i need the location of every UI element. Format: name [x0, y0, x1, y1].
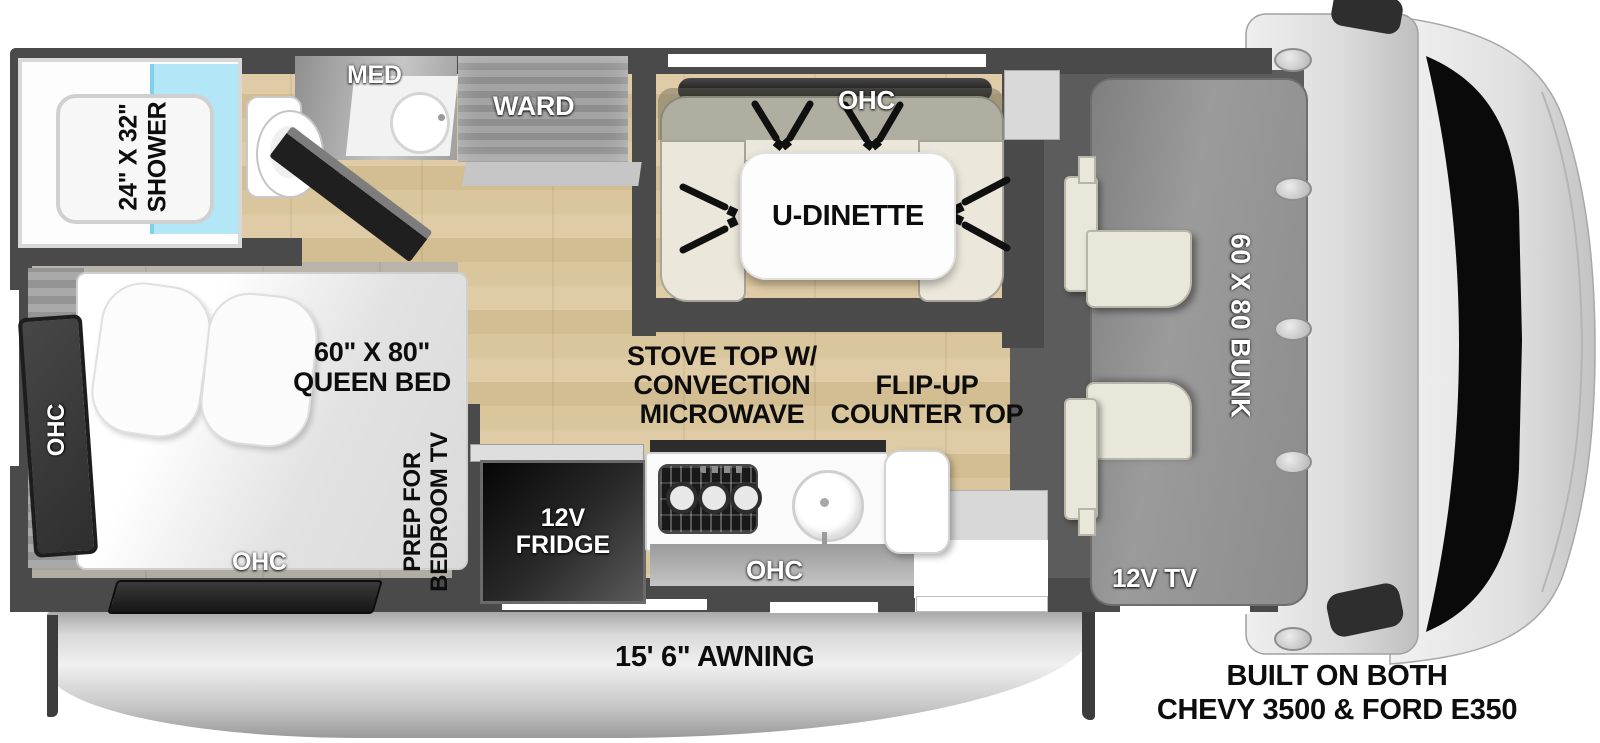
queen-bed-label-line1: 60" X 80"	[293, 337, 451, 367]
flip-up-label-line2: COUNTER TOP	[831, 400, 1024, 429]
stove-knobs-icon	[700, 466, 744, 473]
awning-end-cap-left	[47, 615, 58, 717]
cab-seat-bottom-cushion	[1086, 382, 1192, 460]
fridge-label: 12V FRIDGE	[516, 505, 610, 560]
entry-step-platform	[938, 490, 1048, 546]
clearance-light-icon-1	[1274, 48, 1312, 72]
u-dinette-table: U-DINETTE	[740, 152, 956, 280]
bunk-overlay	[1090, 78, 1308, 606]
awning-end-cap-right	[1082, 612, 1095, 720]
stove-label-line2: CONVECTION	[627, 371, 817, 400]
queen-bed-label: 60" X 80" QUEEN BED	[293, 337, 451, 397]
entry-threshold	[916, 596, 1048, 612]
fridge: 12V FRIDGE	[480, 460, 646, 604]
shower-label: 24" X 32" SHOWER	[114, 102, 172, 213]
bath-sink-icon	[390, 92, 450, 154]
flip-up-counter	[884, 450, 950, 554]
fridge-label-line2: FRIDGE	[516, 532, 610, 560]
tv-prep-label: PREP FOR BEDROOM TV	[399, 432, 453, 592]
bedroom-ohc-foot-label: OHC	[232, 549, 287, 576]
kitchen-ohc-label: OHC	[746, 556, 803, 584]
burner-icon-3	[730, 482, 762, 514]
sink-drain-icon	[820, 498, 829, 507]
kitchen-sink-icon	[792, 470, 864, 542]
shower-text-label: SHOWER	[143, 102, 172, 213]
chassis-line1: BUILT ON BOTH	[1157, 660, 1517, 694]
awning	[47, 612, 1093, 738]
chassis-line2: CHEVY 3500 & FORD E350	[1157, 694, 1517, 728]
dinette-bottom-wall	[644, 298, 1044, 332]
tv-prep-label-line2: BEDROOM TV	[426, 432, 453, 592]
burner-icon-2	[698, 482, 730, 514]
awning-label: 15' 6" AWNING	[615, 642, 814, 673]
cab-seat-top-cushion	[1086, 230, 1192, 308]
med-label: MED	[347, 62, 402, 89]
window-dinette	[668, 54, 986, 67]
clearance-light-icon-5	[1274, 627, 1312, 651]
clearance-light-icon-4	[1274, 450, 1312, 474]
bunk-label: 60 X 80 BUNK	[1225, 234, 1254, 419]
tv-prep-label-line1: PREP FOR	[399, 432, 426, 592]
burner-icon-1	[666, 482, 698, 514]
cab-tv-label: 12V TV	[1112, 564, 1197, 592]
ward-label: WARD	[493, 92, 574, 121]
u-dinette-label: U-DINETTE	[772, 200, 924, 233]
stove-label-line1: STOVE TOP W/	[627, 342, 817, 371]
fridge-label-line1: 12V	[516, 505, 610, 533]
cab-seat-top-headrest	[1078, 156, 1096, 184]
window-door-side	[770, 602, 878, 613]
stove-label: STOVE TOP W/ CONVECTION MICROWAVE	[627, 342, 817, 429]
ward-shelf	[462, 162, 641, 186]
bath-faucet-icon	[438, 114, 445, 121]
queen-bed-label-line2: QUEEN BED	[293, 367, 451, 397]
flip-up-label-line1: FLIP-UP	[831, 371, 1024, 400]
chassis-label: BUILT ON BOTH CHEVY 3500 & FORD E350	[1157, 660, 1517, 727]
cab-seat-bottom-back	[1064, 398, 1098, 520]
rv-floorplan: 15' 6" AWNING BUILT ON BOTH CHEVY 3500 &…	[0, 0, 1600, 743]
bedroom-ohc-foot-bar	[107, 580, 383, 614]
shower-dim-label: 24" X 32"	[114, 102, 143, 213]
window-rear	[8, 290, 19, 466]
bedroom-ohc-rear-label: OHC	[44, 404, 70, 456]
clearance-light-icon-2	[1274, 177, 1312, 201]
dinette-side-cabinet	[1004, 70, 1060, 140]
cab-seat-bottom-headrest	[1078, 508, 1096, 536]
dinette-ohc-label: OHC	[838, 86, 895, 114]
stove-label-line3: MICROWAVE	[627, 400, 817, 429]
clearance-light-icon-3	[1274, 317, 1312, 341]
flip-up-label: FLIP-UP COUNTER TOP	[831, 371, 1024, 429]
